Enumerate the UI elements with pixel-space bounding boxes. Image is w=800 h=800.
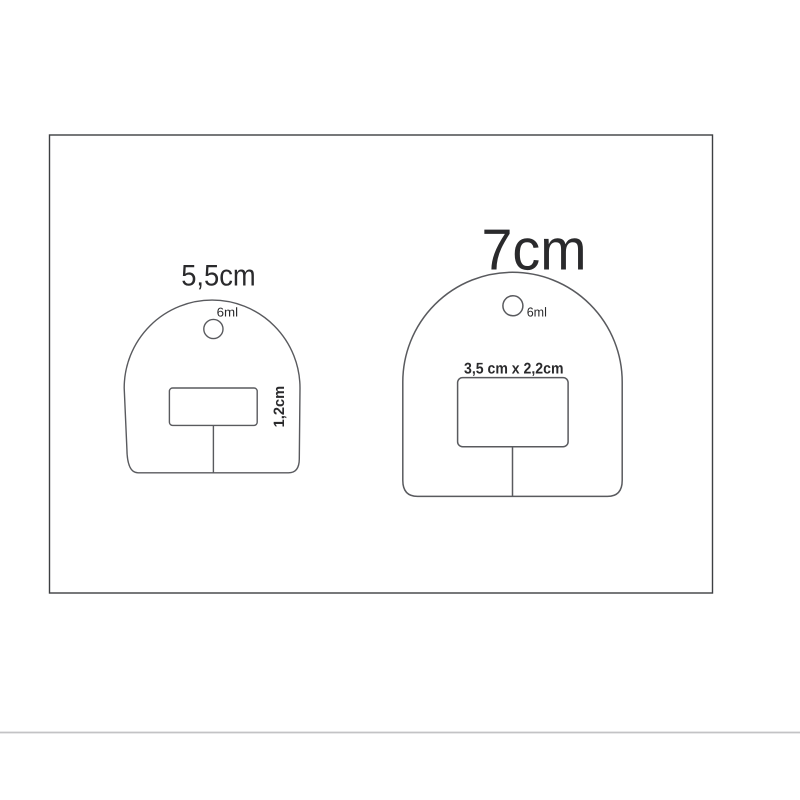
svg-text:1,2cm: 1,2cm: [271, 386, 288, 428]
svg-text:6ml: 6ml: [527, 305, 547, 320]
svg-text:3,5 cm x 2,2cm: 3,5 cm x 2,2cm: [464, 361, 564, 378]
svg-text:5,5cm: 5,5cm: [181, 260, 256, 293]
svg-text:6ml: 6ml: [217, 305, 239, 320]
